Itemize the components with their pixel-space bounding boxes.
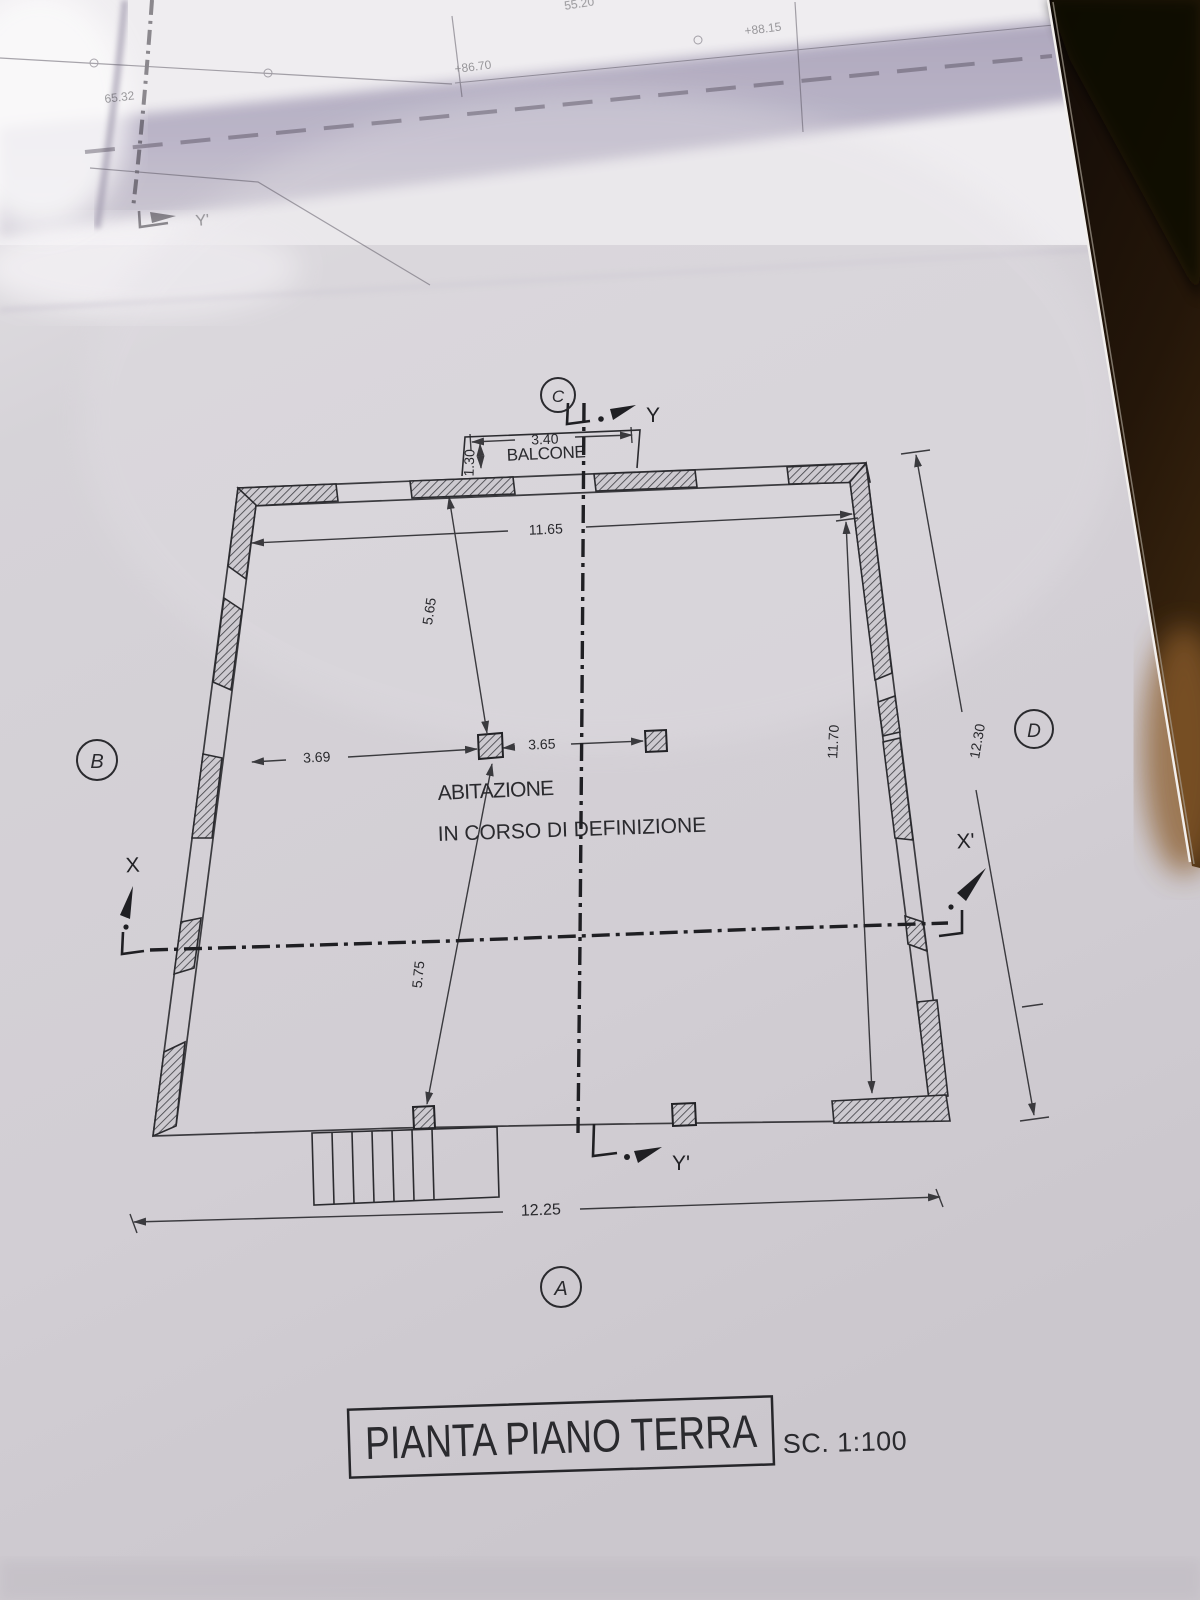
pillar bbox=[645, 730, 667, 752]
dim-center-bay-width: 3.65 bbox=[528, 736, 556, 753]
section-label-x: X bbox=[125, 854, 140, 878]
grid-marker-d: D bbox=[1027, 721, 1041, 742]
grid-marker-a: A bbox=[553, 1278, 567, 1300]
dim-top-inner-width: 11.65 bbox=[528, 520, 563, 537]
pillar bbox=[413, 1106, 435, 1129]
grid-marker-b: B bbox=[90, 751, 103, 773]
dim-left-bay-width: 3.69 bbox=[303, 748, 331, 765]
dim-lower-bay-depth: 5.75 bbox=[409, 960, 428, 989]
dim-balcony-depth: 1.30 bbox=[461, 449, 478, 477]
section-label-y-end: Y' bbox=[672, 1152, 690, 1175]
upper-section-end-label: Y' bbox=[195, 212, 210, 230]
grid-marker-c: C bbox=[552, 387, 565, 406]
section-label-y: Y bbox=[646, 404, 660, 427]
pillar bbox=[672, 1103, 696, 1126]
paper-background bbox=[0, 0, 1200, 1600]
dim-right-inner-depth: 11.70 bbox=[824, 724, 842, 759]
floor-plan-photo: 55.20 65.32 +86.70 +88.15 Y' bbox=[0, 0, 1200, 1600]
pillar bbox=[478, 733, 503, 759]
dim-bottom-overall-width: 12.25 bbox=[521, 1201, 562, 1219]
section-label-x-end: X' bbox=[956, 830, 975, 854]
drawing-canvas: 55.20 65.32 +86.70 +88.15 Y' bbox=[0, 0, 1200, 1600]
balcony-label: BALCONE bbox=[506, 442, 587, 464]
drawing-scale: SC. 1:100 bbox=[782, 1426, 907, 1459]
